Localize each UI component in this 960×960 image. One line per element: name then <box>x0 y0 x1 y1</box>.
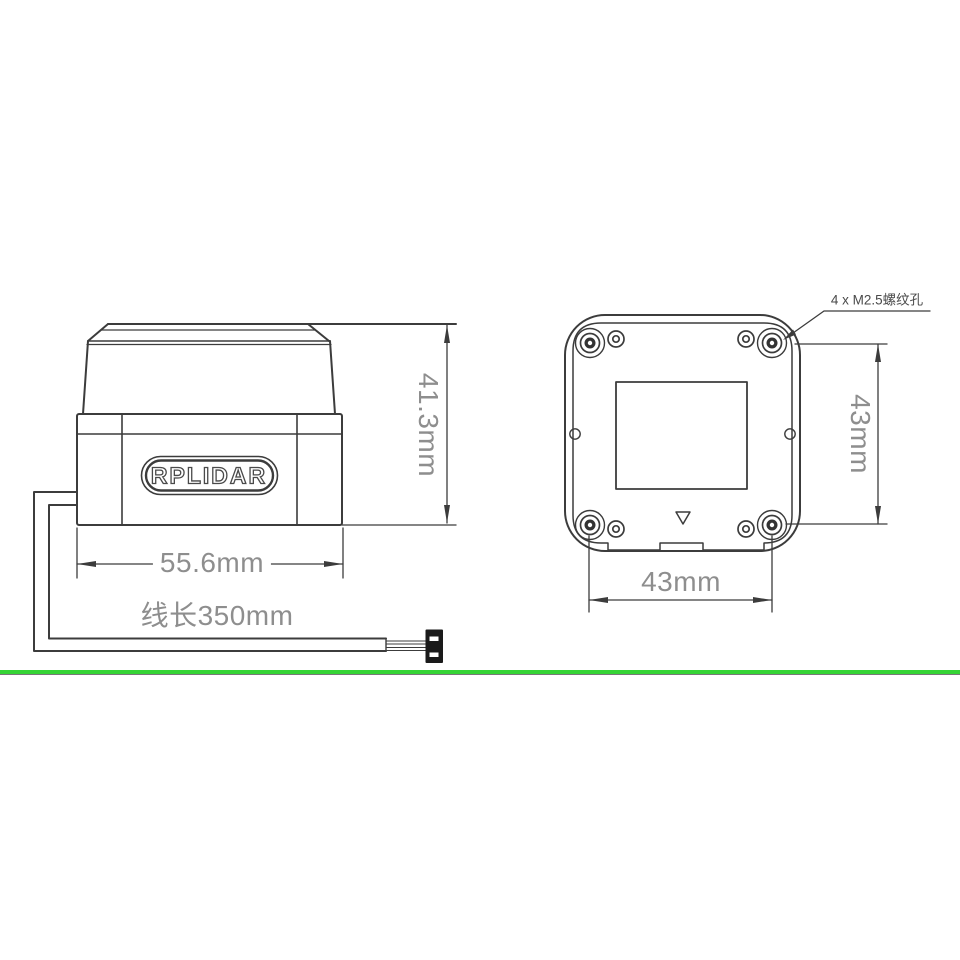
pilot-hole <box>608 331 624 347</box>
technical-drawing-svg <box>0 0 960 960</box>
screw-hole <box>581 334 600 353</box>
side-view-width-dimension: 55.6mm <box>153 549 271 577</box>
center-opening <box>616 382 747 489</box>
screw-hole <box>763 516 782 535</box>
pilot-hole <box>738 331 754 347</box>
pilot-hole <box>738 521 754 537</box>
separator-shadow-line <box>0 674 960 676</box>
side-view-height-dimension: 41.3mm <box>414 373 442 477</box>
screw-hole <box>581 516 600 535</box>
drawing-canvas: 41.3mm 55.6mm 线长350mm 4 x M2.5螺纹孔 43mm 4… <box>0 0 960 960</box>
mount-hole-label: 4 x M2.5螺纹孔 <box>831 293 923 307</box>
side-view-dimensions <box>77 325 456 578</box>
bottom-view-outline <box>565 315 800 551</box>
orientation-mark <box>676 512 690 524</box>
screw-hole <box>763 334 782 353</box>
rplidar-logo: RPLIDAR <box>151 465 267 488</box>
bottom-view-height-dimension: 43mm <box>846 394 874 474</box>
bottom-view-width-dimension: 43mm <box>641 568 721 596</box>
side-view-outline <box>77 324 456 525</box>
mount-holes <box>581 331 782 537</box>
cable-length-label: 线长350mm <box>141 602 294 630</box>
connector-plug <box>426 630 444 664</box>
pilot-hole <box>608 521 624 537</box>
